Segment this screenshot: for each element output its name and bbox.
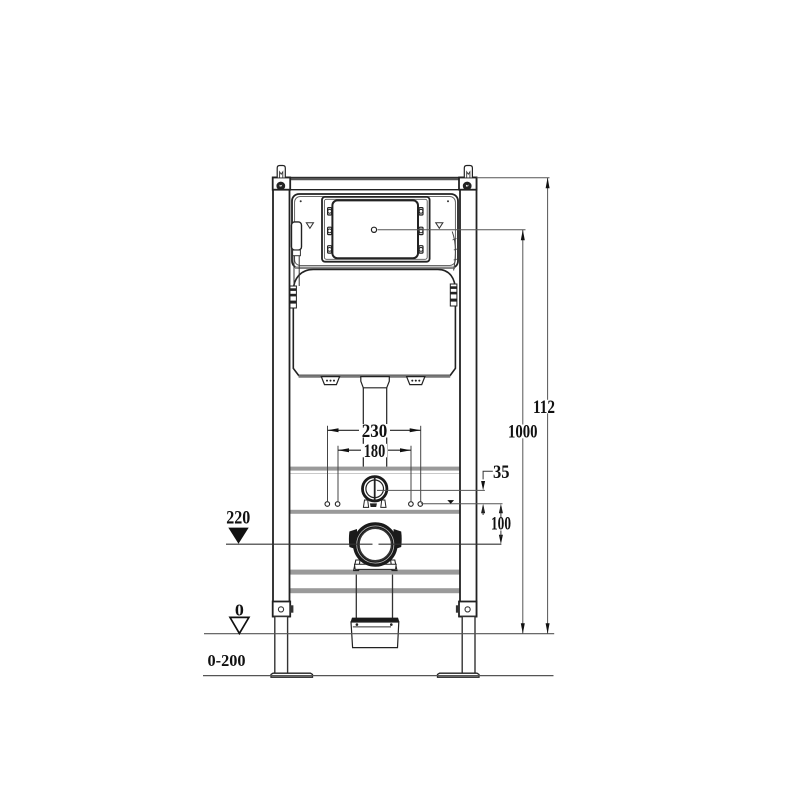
svg-text:112: 112 [533, 397, 555, 418]
svg-text:35: 35 [493, 462, 510, 483]
svg-text:0: 0 [235, 600, 244, 619]
svg-text:0-200: 0-200 [208, 651, 246, 670]
svg-text:100: 100 [491, 513, 511, 534]
svg-text:220: 220 [226, 508, 250, 529]
svg-text:180: 180 [364, 441, 386, 462]
svg-text:1000: 1000 [508, 422, 538, 443]
svg-text:230: 230 [362, 421, 388, 442]
